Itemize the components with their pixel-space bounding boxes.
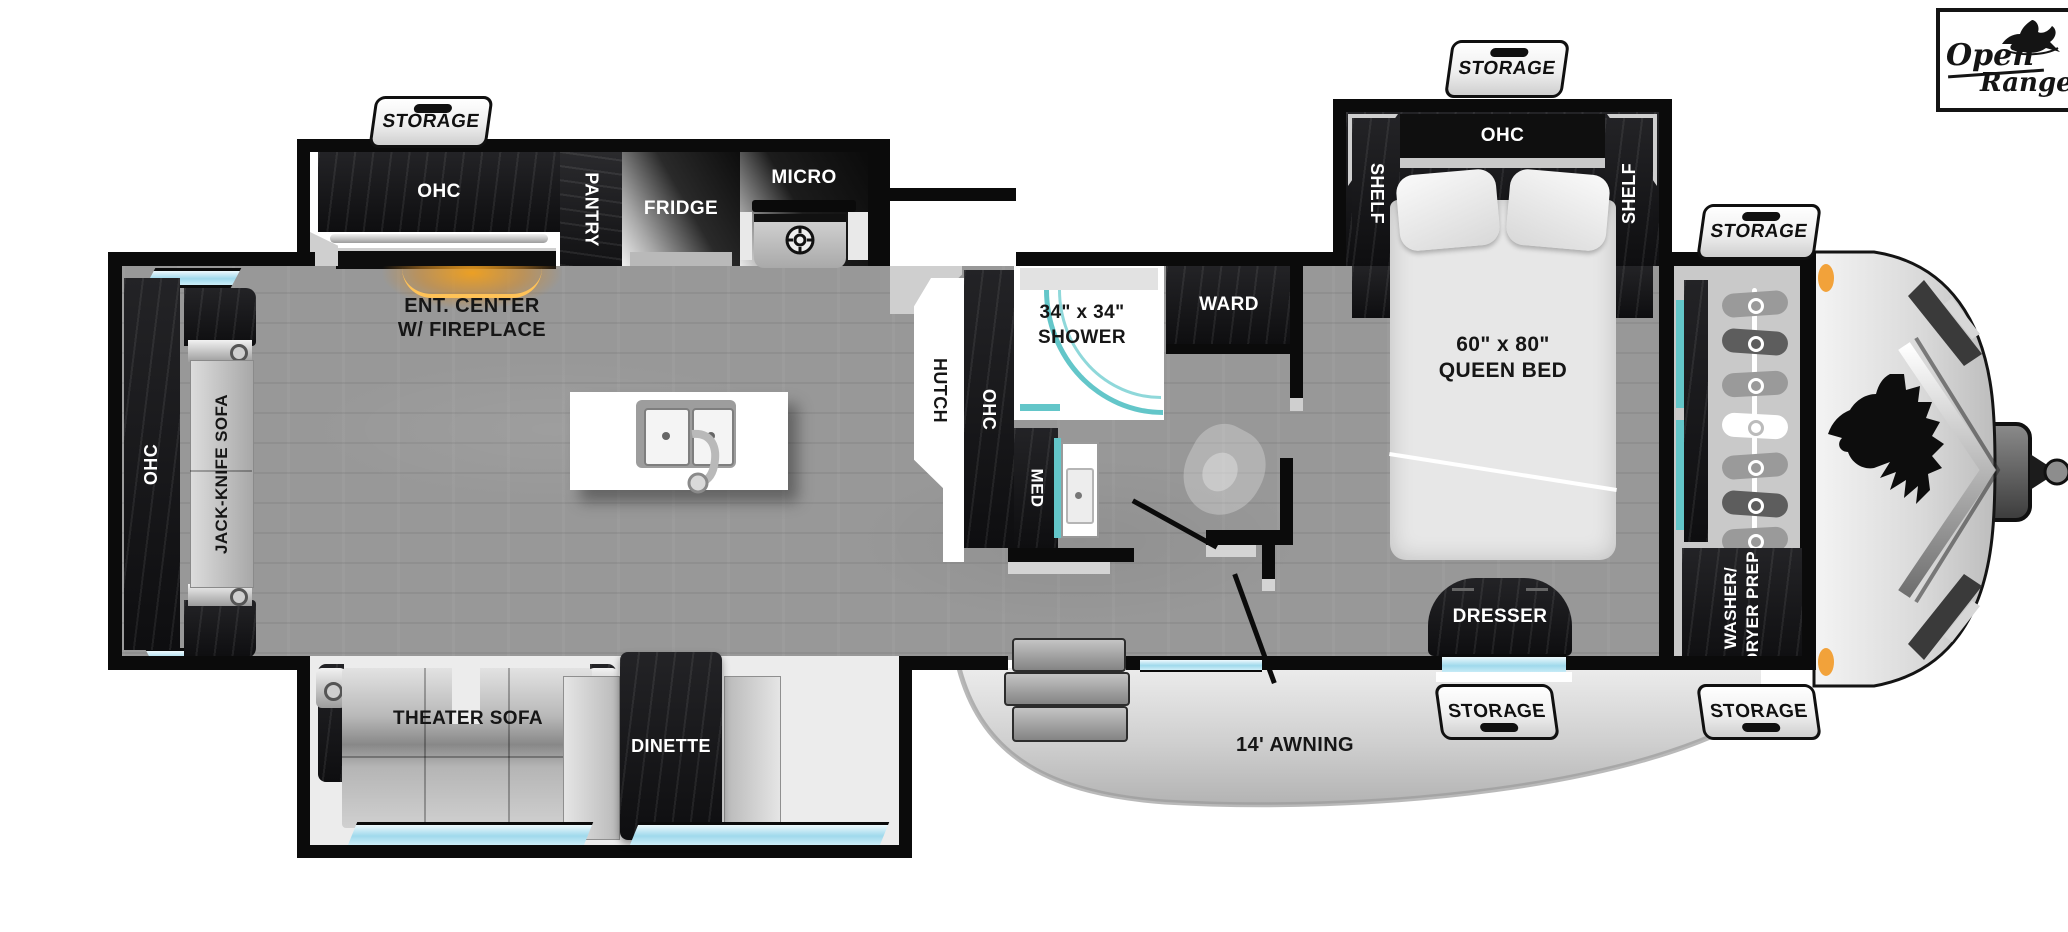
top-wall-a [122,252,315,266]
bedroom-slide-wall-top [1333,99,1672,112]
cabinet-handle [330,234,548,243]
fridge-base [630,252,732,266]
hutch-ohc: OHC [964,270,1014,548]
med-trim [1054,438,1061,538]
bedroom-slide-wall-left [1333,99,1346,266]
headboard-trim [1400,158,1605,168]
bath-threshold [1008,562,1110,574]
sofa-seam [190,470,252,472]
washer-dryer-prep: WASHER/ DRYER PREP [1682,548,1802,668]
pillow-icon [1395,168,1501,252]
micro-label: MICRO [740,158,868,198]
drain-icon [662,432,670,440]
entry-step-1 [1012,638,1126,672]
storage-tag-kitchen: STORAGE [368,96,493,148]
tag-slot [1742,212,1781,221]
brand-logo-box: Open Range [1936,8,2068,112]
closet-wall-right [1800,252,1816,670]
cupholder-icon [230,588,248,606]
window-sill [360,862,592,873]
hanger-ring-icon [1748,378,1764,394]
sofa-end-bottom [184,600,256,658]
wardrobe: WARD [1166,266,1292,344]
bed-label: 60" x 80" QUEEN BED [1403,332,1603,384]
front-cap [1812,246,2068,696]
hall-wall-stub [1262,545,1275,579]
tag-slot [1742,723,1781,732]
entry-window [1140,658,1262,672]
dinette-table: DINETTE [620,652,722,840]
storage-tag-front-top: STORAGE [1696,204,1822,260]
hall-wall [1280,458,1293,534]
rear-wall [108,252,122,670]
bottom-wall-a [122,656,310,670]
drain-icon [1075,492,1082,499]
dinette-bench-right [724,676,781,840]
shower-wall-band [1020,268,1158,290]
wall-endcap [1290,398,1303,411]
kitchen-slide-wall-left [297,139,310,266]
hall-wall-t [1206,530,1293,545]
hanger-ring-icon [1748,460,1764,476]
wall-endcap [1262,579,1275,591]
kitchen-counter-extension [890,200,1016,266]
sofa-seam [508,668,510,828]
dresser-handle [1526,588,1548,591]
lounge-window-left [347,822,594,848]
pillow-icon [1505,168,1611,252]
closet-door-panel [1684,280,1708,542]
entry-step-3 [1012,706,1128,742]
hanger-ring-icon [1748,336,1764,352]
kitchen-ohc: OHC [318,152,560,232]
hanger-ring-icon [1748,420,1764,436]
bath-bedroom-wall [1290,252,1303,398]
bedroom-ohc: OHC [1400,114,1605,158]
burner-icon [784,224,816,256]
marker-light-bottom-icon [1818,648,1834,676]
ent-center-label: ENT. CENTER W/ FIREPLACE [372,294,572,342]
closet-wall-left [1659,252,1674,670]
bottom-wall-b [899,656,1008,670]
faucet-icon [682,428,730,494]
range-hood-vent [752,200,856,212]
pantry: PANTRY [560,152,622,266]
fridge: FRIDGE [622,152,740,266]
marker-light-top-icon [1818,264,1834,292]
hitch-coupler [2045,460,2068,484]
dresser: DRESSER [1428,578,1572,656]
hanger-ring-icon [1748,298,1764,314]
hanger-ring-icon [1748,498,1764,514]
floorplan-canvas: 14' AWNING [0,0,2068,932]
shower-base-trim [1020,404,1060,411]
bath-wall [1008,548,1134,562]
storage-tag-dresser: STORAGE [1434,684,1560,740]
range-side-right [848,212,868,260]
closet-mirror-door [1676,420,1684,530]
window-sill [1436,672,1572,682]
wardrobe-base [1166,344,1292,354]
dresser-handle [1452,588,1474,591]
sofa-seam [424,668,426,828]
storage-tag-bedroom: STORAGE [1444,40,1570,98]
tag-slot [1490,48,1529,57]
rear-ohc-cabinet: OHC [124,278,180,650]
shower-label: 34" x 34" SHOWER [1022,300,1142,350]
storage-tag-front-bottom: STORAGE [1696,684,1822,740]
closet-mirror-door [1676,300,1684,408]
dinette-bench-left [563,676,620,840]
sofa-seam [342,756,592,758]
bedroom-slide-wall-right [1659,99,1672,266]
kitchen-slide-wall-right [868,139,890,266]
lounge-window-right [629,822,890,848]
wall-counter-top [868,188,1016,201]
sofa-end-top [184,288,256,346]
jack-knife-sofa: JACK-KNIFE SOFA [190,360,254,588]
theater-sofa-label: THEATER SOFA [352,706,584,732]
tag-slot [1480,723,1519,732]
cupholder-icon [324,682,343,701]
entry-step-2 [1004,672,1130,706]
tag-slot [413,104,452,113]
window-sill [640,862,880,873]
lounge-slide-wall-right [899,656,912,858]
med-cabinet: MED [1014,428,1058,548]
range-side-left [740,212,752,260]
awning-label: 14' AWNING [1215,732,1375,758]
top-wall-b [1016,252,1346,266]
lounge-slide-wall-left [297,656,310,858]
